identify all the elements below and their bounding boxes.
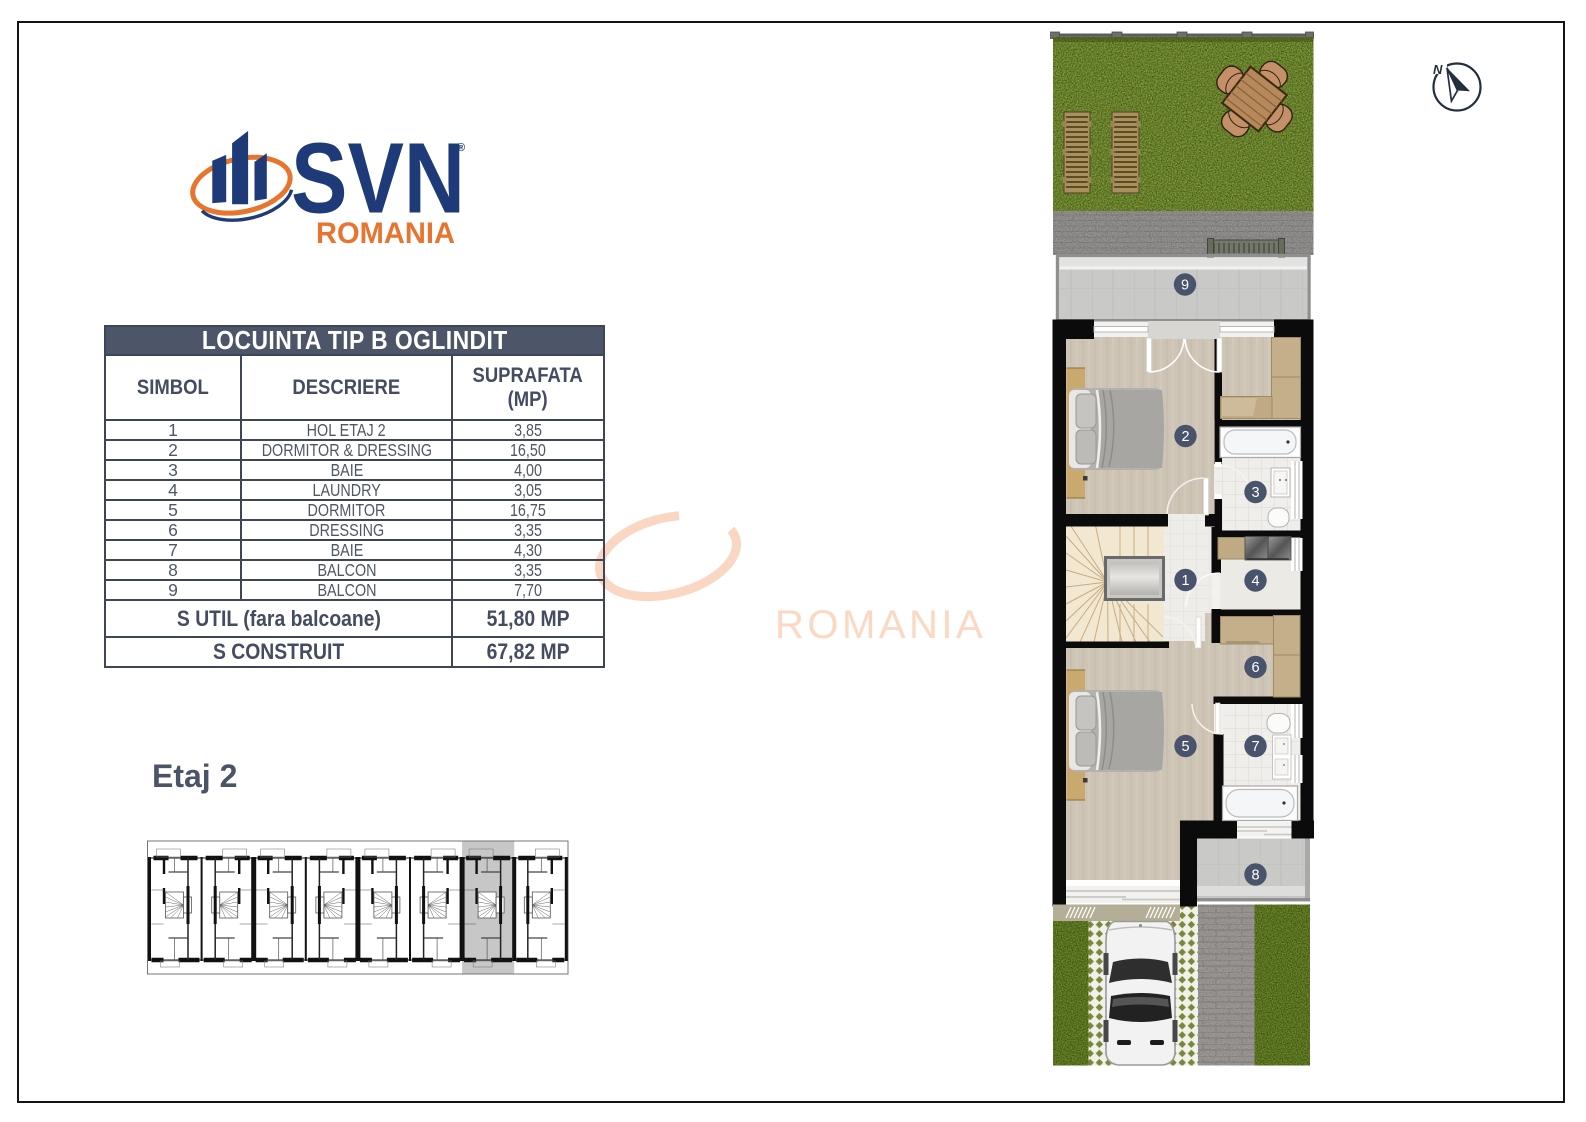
svg-text:4: 4 [1251,574,1259,590]
svg-text:ROMANIA: ROMANIA [316,217,455,250]
svg-text:2: 2 [1181,429,1189,445]
svg-text:3: 3 [1251,485,1259,501]
svg-text:7: 7 [1251,739,1259,755]
svg-text:N: N [1433,62,1443,77]
svg-text:8: 8 [1251,868,1259,884]
svg-text:5: 5 [1181,739,1189,755]
svg-text:9: 9 [1181,278,1189,294]
svg-text:1: 1 [1181,573,1189,589]
svg-text:®: ® [457,142,465,154]
svg-text:6: 6 [1251,660,1259,676]
